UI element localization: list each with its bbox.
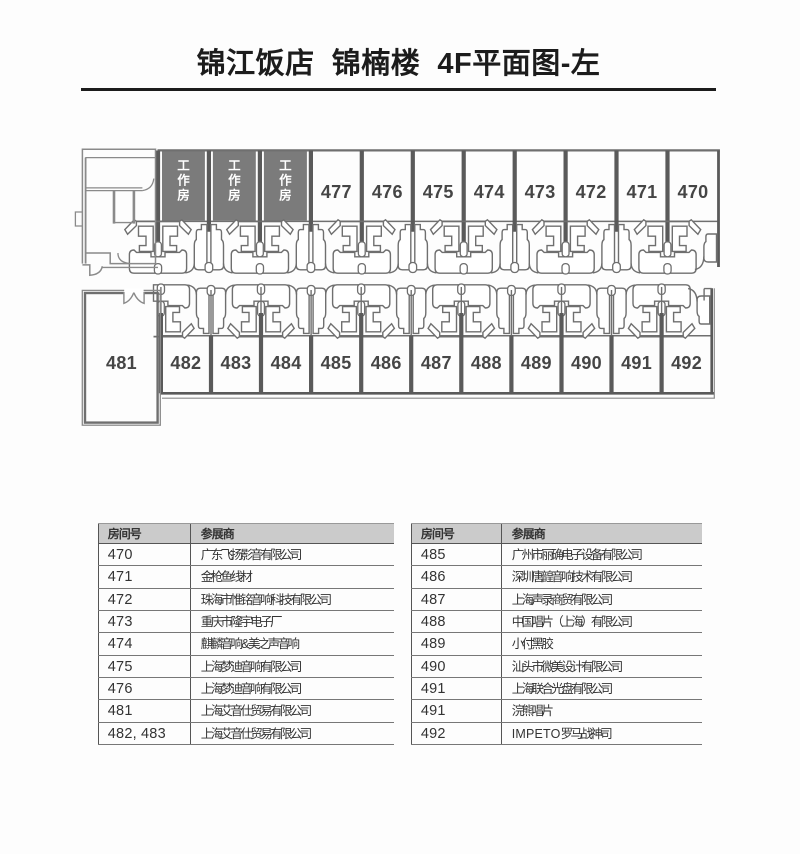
- svg-text:工: 工: [177, 159, 190, 173]
- svg-text:工: 工: [279, 159, 292, 173]
- svg-text:477: 477: [321, 182, 352, 202]
- svg-text:492: 492: [671, 353, 702, 373]
- svg-text:483: 483: [221, 353, 252, 373]
- svg-text:482: 482: [170, 353, 201, 373]
- svg-text:工: 工: [228, 159, 241, 173]
- svg-text:490: 490: [571, 353, 602, 373]
- svg-text:476: 476: [372, 182, 403, 202]
- svg-text:作: 作: [279, 173, 292, 188]
- svg-text:481: 481: [106, 353, 137, 373]
- svg-text:471: 471: [627, 182, 658, 202]
- svg-text:470: 470: [678, 182, 709, 202]
- svg-text:484: 484: [271, 353, 302, 373]
- svg-text:488: 488: [471, 353, 502, 373]
- svg-text:486: 486: [371, 353, 402, 373]
- svg-text:473: 473: [525, 182, 556, 202]
- svg-text:489: 489: [521, 353, 552, 373]
- svg-text:474: 474: [474, 182, 505, 202]
- svg-text:房: 房: [177, 187, 190, 202]
- svg-text:472: 472: [576, 182, 607, 202]
- svg-text:房: 房: [279, 187, 292, 202]
- svg-text:491: 491: [621, 353, 652, 373]
- svg-text:485: 485: [321, 353, 352, 373]
- svg-text:487: 487: [421, 353, 452, 373]
- svg-text:作: 作: [177, 173, 190, 188]
- svg-text:475: 475: [423, 182, 454, 202]
- svg-text:房: 房: [228, 187, 241, 202]
- svg-text:作: 作: [228, 173, 241, 188]
